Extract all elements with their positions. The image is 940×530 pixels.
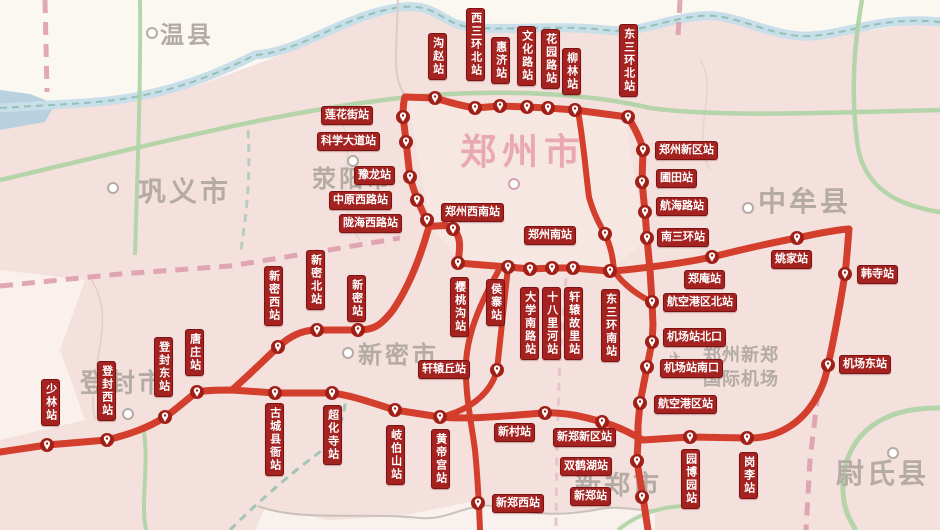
station-marker bbox=[523, 262, 537, 276]
station-marker bbox=[399, 135, 413, 149]
station-marker bbox=[638, 205, 652, 219]
xinmi-branch bbox=[232, 230, 428, 390]
station-marker bbox=[621, 110, 635, 124]
station-marker bbox=[40, 438, 54, 452]
station-marker bbox=[325, 386, 339, 400]
station-marker bbox=[740, 431, 754, 445]
station-marker bbox=[683, 430, 697, 444]
city-loop-line bbox=[403, 97, 653, 530]
station-marker bbox=[396, 110, 410, 124]
station-marker bbox=[821, 358, 835, 372]
station-marker bbox=[403, 170, 417, 184]
station-marker bbox=[838, 267, 852, 281]
station-marker bbox=[501, 260, 515, 274]
station-marker bbox=[468, 101, 482, 115]
station-marker bbox=[640, 231, 654, 245]
station-marker bbox=[636, 143, 650, 157]
station-marker bbox=[388, 403, 402, 417]
station-marker bbox=[410, 193, 424, 207]
station-marker bbox=[633, 396, 647, 410]
station-marker bbox=[433, 410, 447, 424]
station-marker bbox=[420, 213, 434, 227]
xuanyuanqiu-link bbox=[448, 267, 508, 415]
station-marker bbox=[635, 175, 649, 189]
station-marker bbox=[598, 227, 612, 241]
station-marker bbox=[705, 250, 719, 264]
station-marker bbox=[428, 91, 442, 105]
station-marker bbox=[645, 335, 659, 349]
station-marker bbox=[271, 340, 285, 354]
station-marker bbox=[190, 385, 204, 399]
station-marker bbox=[493, 99, 507, 113]
station-marker bbox=[471, 496, 485, 510]
station-marker bbox=[268, 386, 282, 400]
station-marker bbox=[645, 295, 659, 309]
station-marker bbox=[790, 231, 804, 245]
station-marker bbox=[310, 323, 324, 337]
map-canvas: 温县巩义市荥阳市郑州市中牟县新密市登封市新郑市尉氏县郑州新郑国际机场✈ 沟赵站西… bbox=[0, 0, 940, 530]
xinzhengxi-link bbox=[466, 268, 500, 530]
station-marker bbox=[635, 490, 649, 504]
station-marker bbox=[351, 323, 365, 337]
station-marker bbox=[545, 261, 559, 275]
south-outer-loop-line bbox=[0, 229, 849, 452]
station-marker bbox=[520, 100, 534, 114]
station-marker bbox=[640, 360, 654, 374]
station-marker bbox=[490, 363, 504, 377]
station-marker bbox=[541, 101, 555, 115]
station-marker bbox=[568, 103, 582, 117]
station-marker bbox=[100, 433, 114, 447]
station-marker bbox=[446, 222, 460, 236]
station-marker bbox=[630, 454, 644, 468]
station-marker bbox=[538, 406, 552, 420]
station-marker bbox=[451, 256, 465, 270]
station-marker bbox=[566, 261, 580, 275]
station-marker bbox=[603, 264, 617, 278]
rail-lines bbox=[0, 0, 940, 530]
station-marker bbox=[595, 415, 609, 429]
station-marker bbox=[158, 410, 172, 424]
